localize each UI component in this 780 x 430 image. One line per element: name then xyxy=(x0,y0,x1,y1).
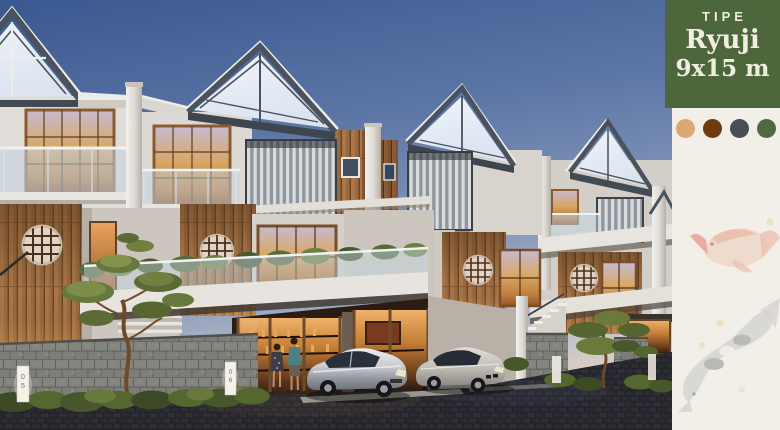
type-size: 9x15 m xyxy=(675,56,769,81)
property-render: 0 5 0 6 xyxy=(0,0,672,430)
swatch-olive[interactable] xyxy=(757,119,776,138)
svg-text:0: 0 xyxy=(21,374,25,381)
promo-banner: 0 5 0 6 xyxy=(0,0,780,430)
material-swatches xyxy=(672,116,780,140)
small-window xyxy=(342,158,359,177)
type-label: TIPE xyxy=(698,9,747,24)
render-scene: 0 5 0 6 xyxy=(0,0,672,430)
swatch-charcoal[interactable] xyxy=(730,119,749,138)
small-window xyxy=(384,164,395,180)
balcony xyxy=(0,148,136,204)
svg-text:6: 6 xyxy=(229,377,233,384)
koi-watermark-illustration xyxy=(672,150,780,430)
swatch-dark-brown[interactable] xyxy=(703,119,722,138)
koi-gray xyxy=(678,298,780,412)
type-name: Ryuji xyxy=(685,26,759,56)
swatch-sand[interactable] xyxy=(676,119,695,138)
svg-text:0: 0 xyxy=(229,369,233,376)
svg-text:5: 5 xyxy=(21,383,25,390)
koi-orange xyxy=(690,228,780,272)
type-card[interactable]: TIPE Ryuji 9x15 m xyxy=(665,0,780,108)
light-post xyxy=(552,356,561,383)
light-post xyxy=(648,354,656,380)
